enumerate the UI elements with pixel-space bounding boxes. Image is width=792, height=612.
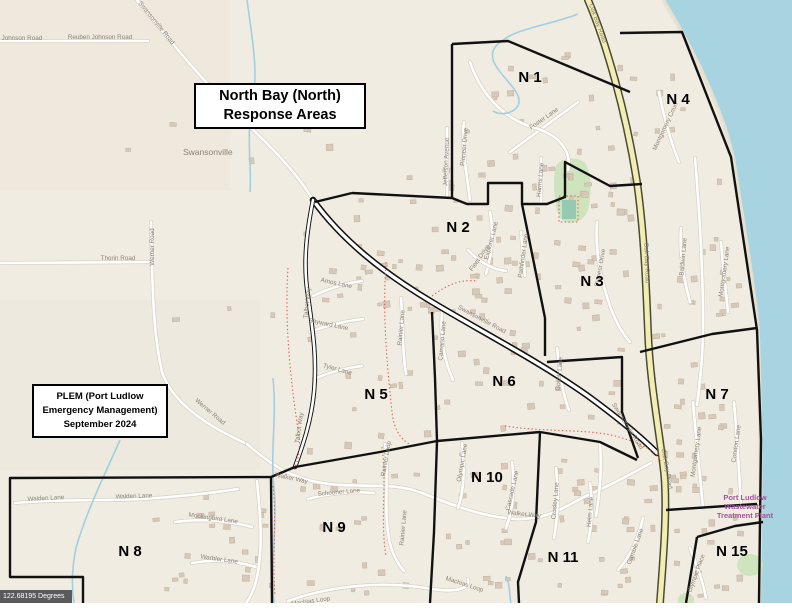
map-title-line1: North Bay (North) bbox=[196, 87, 364, 106]
area-label: N 11 bbox=[548, 549, 579, 566]
street-label: Thorin Road bbox=[101, 255, 136, 262]
bottom-margin bbox=[0, 603, 792, 612]
coordinate-badge: 122.68195 Degrees bbox=[0, 590, 72, 603]
credit-line2: Emergency Management) bbox=[34, 404, 166, 418]
area-boundary bbox=[271, 477, 272, 603]
area-label: N 8 bbox=[118, 543, 141, 560]
street-label: Oak Bay Road bbox=[642, 242, 650, 284]
area-label: N 4 bbox=[666, 91, 690, 108]
poi-line1: Port Ludlow bbox=[698, 493, 792, 502]
area-label: N 10 bbox=[471, 469, 503, 486]
wastewater-plant-label: Port Ludlow Wastewater Treatment Plant bbox=[698, 493, 792, 520]
area-label: N 15 bbox=[716, 543, 748, 560]
map-title-box: North Bay (North) Response Areas bbox=[194, 83, 366, 129]
street-label: Werner Road bbox=[149, 228, 156, 266]
street-label: Reuben Johnson Road bbox=[0, 35, 43, 42]
area-label: N 3 bbox=[580, 273, 603, 290]
poi-line2: Wastewater bbox=[698, 502, 792, 511]
area-label: N 9 bbox=[322, 519, 345, 536]
street-label: Walden Lane bbox=[115, 492, 153, 500]
map-title-line2: Response Areas bbox=[196, 106, 364, 125]
place-label-swansonville: Swansonville bbox=[183, 147, 233, 157]
response-area-map[interactable]: Reuben Johnson RoadReuben Johnson RoadSw… bbox=[0, 0, 792, 612]
map-canvas[interactable]: Reuben Johnson RoadReuben Johnson RoadSw… bbox=[0, 0, 792, 612]
area-label: N 5 bbox=[364, 386, 387, 403]
area-label: N 6 bbox=[492, 373, 515, 390]
street-label: Reuben Johnson Road bbox=[68, 34, 133, 41]
credit-box: PLEM (Port Ludlow Emergency Management) … bbox=[32, 384, 168, 438]
credit-line1: PLEM (Port Ludlow bbox=[34, 390, 166, 404]
credit-line3: September 2024 bbox=[34, 418, 166, 432]
area-label: N 1 bbox=[518, 69, 541, 86]
poi-line3: Treatment Plant bbox=[698, 511, 792, 520]
area-label: N 7 bbox=[705, 386, 728, 403]
area-label: N 2 bbox=[446, 219, 469, 236]
